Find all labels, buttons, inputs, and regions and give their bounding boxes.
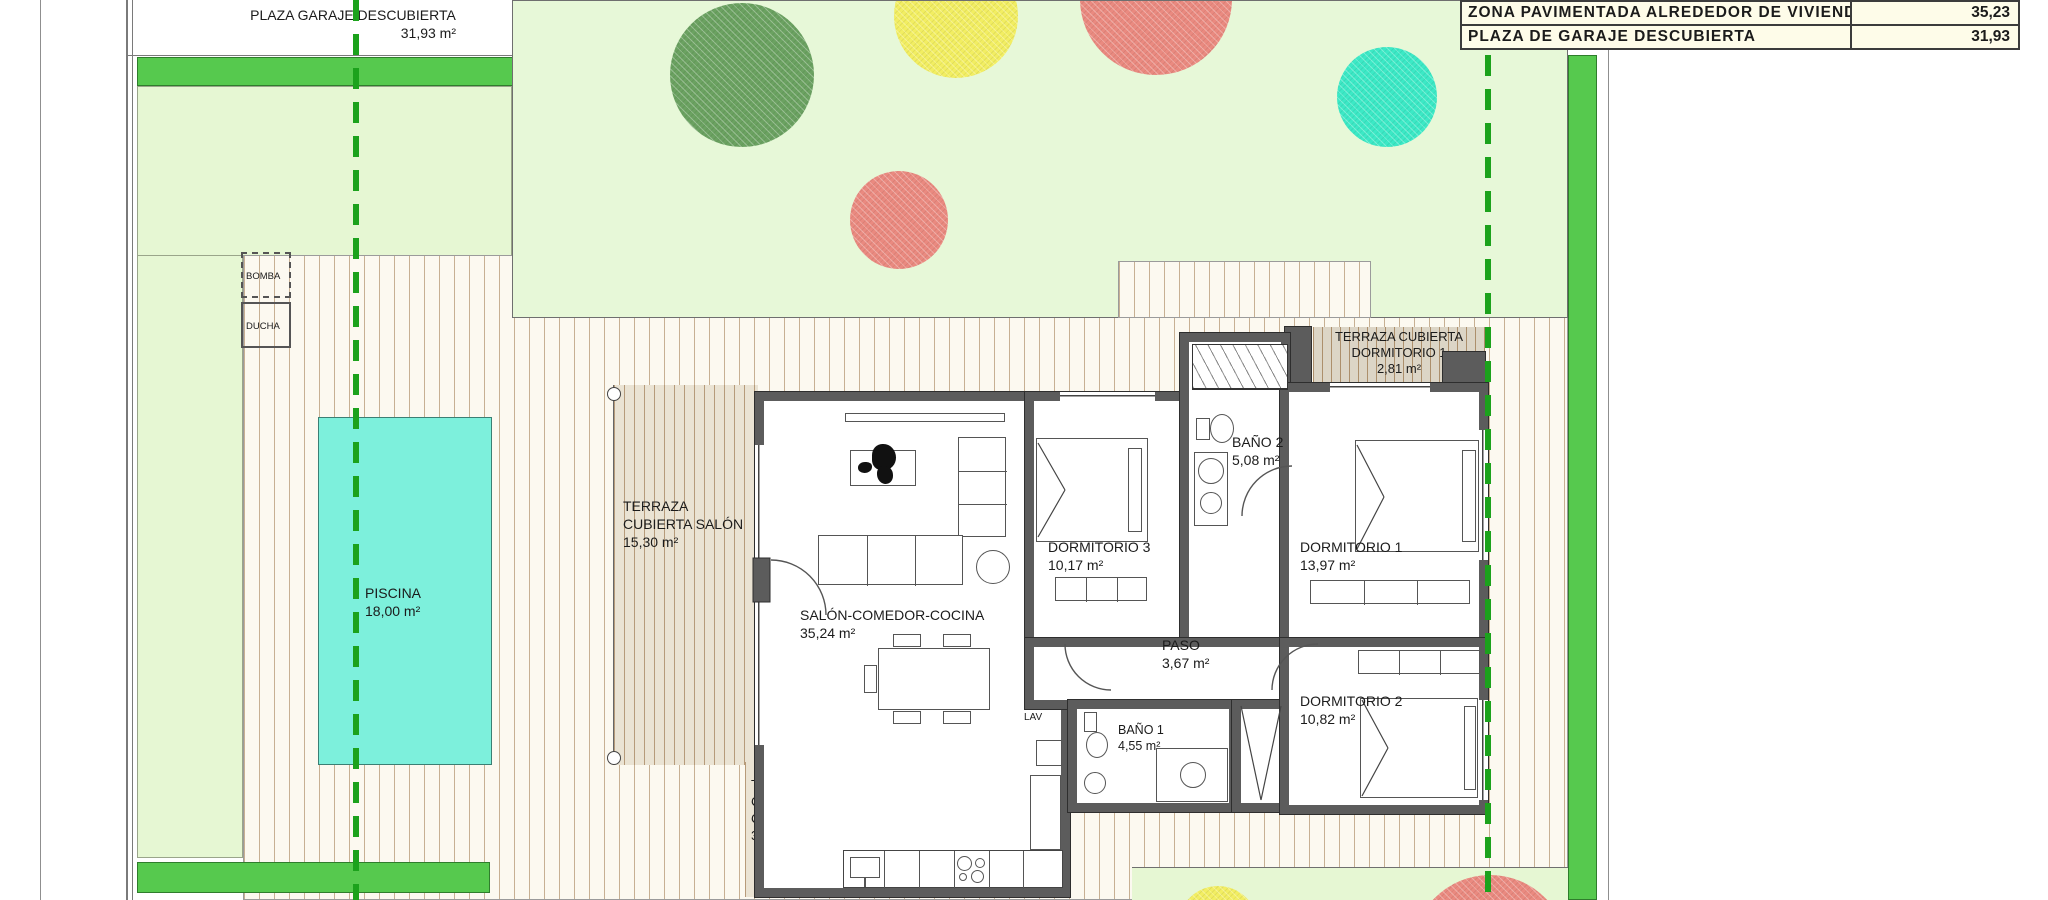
wardrobe-divider <box>1364 581 1365 605</box>
sofa-cushion-divider <box>959 504 1007 505</box>
label-bomba: BOMBA <box>246 271 280 282</box>
lawn-left-column <box>137 255 243 858</box>
sheet-border-line-left <box>40 0 41 900</box>
label-dormitorio1-name: DORMITORIO 1 <box>1300 538 1402 556</box>
room-paso <box>1025 638 1290 709</box>
counter-divider <box>989 851 990 889</box>
lawn-bottom-right <box>1132 867 1568 900</box>
wardrobe-divider <box>1086 578 1087 602</box>
sink-bano2-b <box>1200 492 1222 514</box>
label-dormitorio1: DORMITORIO 1 13,97 m² <box>1300 538 1402 574</box>
kitchen-counter-right <box>1030 775 1061 850</box>
dining-chair <box>943 711 971 724</box>
toilet-bowl-bano2 <box>1210 414 1234 443</box>
plant-blob-3 <box>877 466 893 484</box>
floor-plan-sheet: PISCINA 18,00 m² BOMBA DUCHA PLAZA GARAJ… <box>0 0 2048 900</box>
toilet-tank-bano2 <box>1196 418 1210 440</box>
label-bano2-area: 5,08 m² <box>1232 451 1283 469</box>
hob-burner <box>959 873 967 881</box>
tree-circle-yellow <box>894 0 1018 78</box>
counter-divider <box>919 851 920 889</box>
washing-machine <box>1036 740 1062 766</box>
garage-band-bottom-line <box>126 55 512 56</box>
label-bano1-name: BAÑO 1 <box>1118 722 1164 738</box>
sofa-right-section <box>958 437 1006 537</box>
kitchen-sink <box>850 857 880 878</box>
technical-closet-hatch <box>1192 344 1288 390</box>
wardrobe-dormitorio3 <box>1055 577 1147 601</box>
tree-circle-red-top <box>1080 0 1232 75</box>
wardrobe-dormitorio2 <box>1358 650 1480 674</box>
hedge-strip-right <box>1568 55 1597 900</box>
counter-divider <box>884 851 885 889</box>
tv-sideboard <box>845 413 1005 422</box>
label-terraza-dorm1-l1: TERRAZA CUBIERTA <box>1313 329 1485 345</box>
bed-dormitorio1 <box>1355 440 1479 552</box>
label-piscina: PISCINA 18,00 m² <box>365 584 421 620</box>
toilet-bowl-bano1 <box>1086 732 1108 758</box>
legend-row-label: PLAZA DE GARAJE DESCUBIERTA <box>1462 26 1850 48</box>
label-dormitorio2-name: DORMITORIO 2 <box>1300 692 1402 710</box>
label-dormitorio3: DORMITORIO 3 10,17 m² <box>1048 538 1150 574</box>
legend-row: ZONA PAVIMENTADA ALREDEDOR DE VIVIENDA 3… <box>1462 2 2018 26</box>
tree-circle-green <box>670 3 814 147</box>
lawn-top-left <box>137 86 512 256</box>
label-bano2: BAÑO 2 5,08 m² <box>1232 433 1283 469</box>
legend-row-label: ZONA PAVIMENTADA ALREDEDOR DE VIVIENDA <box>1462 2 1850 24</box>
label-terraza-salon-l1: TERRAZA <box>623 497 743 515</box>
label-dormitorio2: DORMITORIO 2 10,82 m² <box>1300 692 1402 728</box>
round-side-table <box>976 550 1010 584</box>
label-salon-name: SALÓN-COMEDOR-COCINA <box>800 606 984 624</box>
pillow-dormitorio3 <box>1128 448 1142 532</box>
hedge-strip-top <box>137 57 550 86</box>
label-dormitorio3-area: 10,17 m² <box>1048 556 1150 574</box>
label-dormitorio2-area: 10,82 m² <box>1300 710 1402 728</box>
terrace-post-bottom <box>607 751 621 765</box>
wardrobe-divider <box>1117 578 1118 602</box>
setback-dashed-line-right <box>1485 55 1491 900</box>
sofa-cushion-divider <box>959 471 1007 472</box>
property-boundary-left-inner <box>132 0 133 900</box>
label-terraza-salon-l2: CUBIERTA SALÓN <box>623 515 743 533</box>
wardrobe-divider <box>1440 651 1441 675</box>
label-bano1-area: 4,55 m² <box>1118 738 1164 754</box>
label-dormitorio3-name: DORMITORIO 3 <box>1048 538 1150 556</box>
sofa-cushion-divider <box>915 536 916 586</box>
tree-circle-teal <box>1337 47 1437 147</box>
window-salon-left <box>755 445 764 745</box>
tree-circle-yellow-bottom <box>1178 886 1258 900</box>
counter-divider <box>1023 851 1024 889</box>
tree-circle-red-middle <box>850 171 948 269</box>
hob-burner <box>957 856 972 871</box>
pool: PISCINA 18,00 m² <box>318 417 492 765</box>
dining-table <box>878 648 990 710</box>
label-ducha: DUCHA <box>246 321 280 332</box>
window-dormitorio3-top <box>1060 392 1155 401</box>
label-bano1: BAÑO 1 4,55 m² <box>1118 722 1164 754</box>
toilet-tank-bano1 <box>1084 712 1097 732</box>
legend-row: PLAZA DE GARAJE DESCUBIERTA 31,93 <box>1462 26 2018 48</box>
pillow-dormitorio1 <box>1462 450 1476 542</box>
shower-drain-bano1 <box>1180 762 1206 788</box>
dining-chair <box>893 711 921 724</box>
sheet-border-line-right <box>1608 0 1609 900</box>
sink-tap <box>864 878 866 887</box>
label-paso: PASO 3,67 m² <box>1162 636 1209 672</box>
wardrobe-divider <box>1417 581 1418 605</box>
dining-chair <box>864 665 877 693</box>
hob-burner <box>971 870 984 883</box>
label-paso-name: PASO <box>1162 636 1209 654</box>
sofa-bottom-section <box>818 535 963 585</box>
sink-bano2-a <box>1198 458 1224 484</box>
legend-row-value: 31,93 <box>1850 26 2018 48</box>
label-piscina-name: PISCINA <box>365 584 421 602</box>
hob-burner <box>975 858 985 868</box>
label-paso-area: 3,67 m² <box>1162 654 1209 672</box>
bomba-box: BOMBA <box>241 252 291 298</box>
label-piscina-area: 18,00 m² <box>365 602 421 620</box>
label-terraza-salon-area: 15,30 m² <box>623 533 743 551</box>
label-dormitorio1-area: 13,97 m² <box>1300 556 1402 574</box>
paved-notch-above-house <box>1118 261 1371 318</box>
setback-dashed-line-left <box>353 0 359 900</box>
hedge-strip-bottom-left <box>137 862 490 893</box>
legend-row-value: 35,23 <box>1850 2 2018 24</box>
terraza-cubierta-salon: TERRAZA CUBIERTA SALÓN 15,30 m² <box>613 385 758 765</box>
terrace-post-top <box>607 387 621 401</box>
pillow-dormitorio2 <box>1464 706 1476 790</box>
sink-bano1 <box>1084 772 1106 794</box>
label-bano2-name: BAÑO 2 <box>1232 433 1283 451</box>
label-terraza-salon: TERRAZA CUBIERTA SALÓN 15,30 m² <box>623 497 743 551</box>
property-boundary-left-outer <box>126 0 128 900</box>
counter-divider <box>954 851 955 889</box>
wardrobe-divider <box>1399 651 1400 675</box>
window-dormitorio1-top <box>1330 383 1430 392</box>
label-lav: LAV <box>1024 712 1042 723</box>
label-salon: SALÓN-COMEDOR-COCINA 35,24 m² <box>800 606 984 642</box>
wardrobe-dormitorio1 <box>1310 580 1470 604</box>
garden-area <box>512 0 1568 318</box>
ducha-box: DUCHA <box>241 302 291 348</box>
legend-table: ZONA PAVIMENTADA ALREDEDOR DE VIVIENDA 3… <box>1460 0 2020 50</box>
label-salon-area: 35,24 m² <box>800 624 984 642</box>
sofa-cushion-divider <box>867 536 868 586</box>
